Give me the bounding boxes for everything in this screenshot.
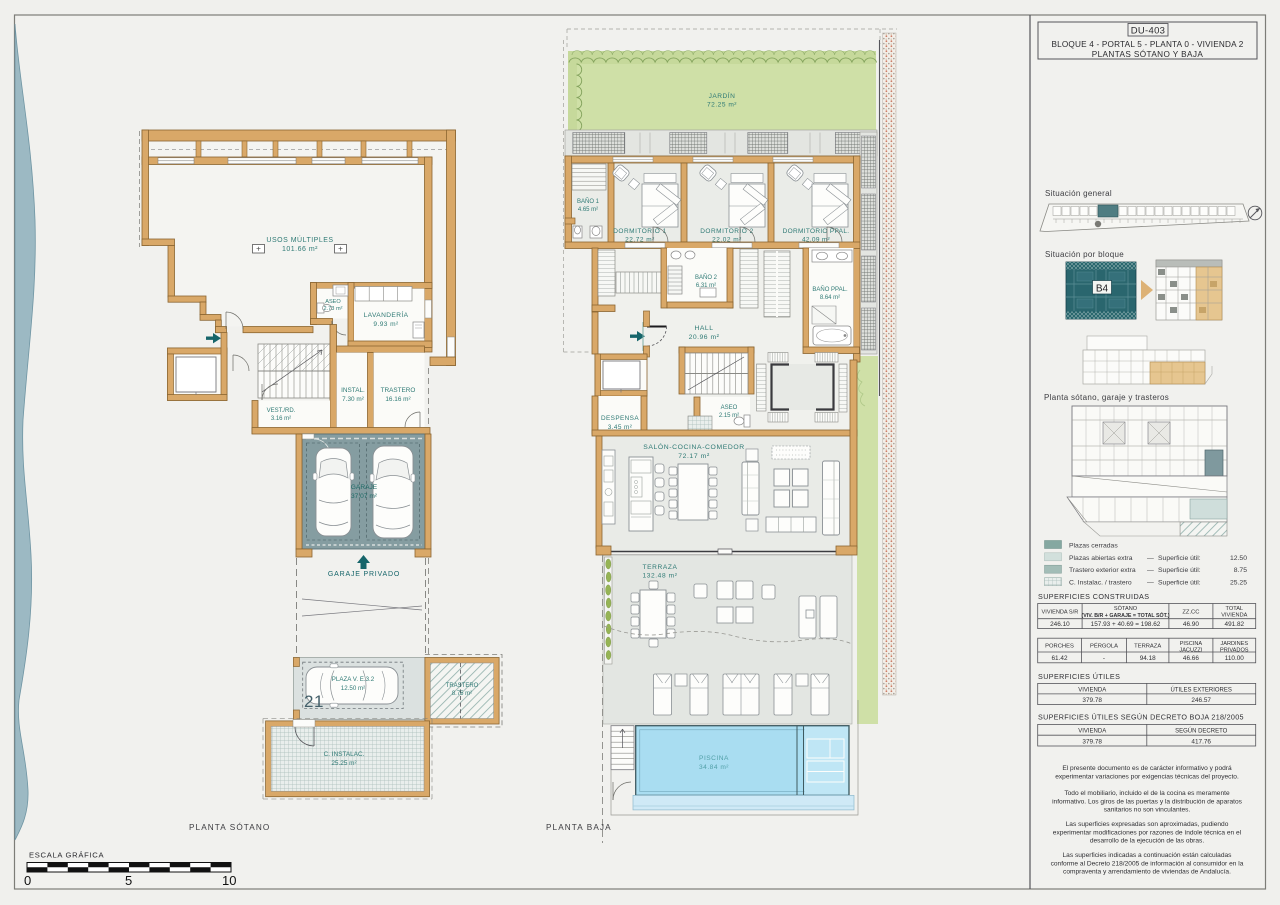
svg-text:5: 5 (125, 873, 132, 888)
svg-text:VIVIENDA: VIVIENDA (1078, 687, 1106, 693)
svg-text:42.09 m²: 42.09 m² (802, 237, 831, 244)
svg-text:Superficie útil:: Superficie útil: (1158, 567, 1201, 574)
svg-text:157.93 + 40.69 = 198.62: 157.93 + 40.69 = 198.62 (1091, 621, 1161, 628)
svg-text:ESCALA GRÁFICA: ESCALA GRÁFICA (29, 851, 104, 860)
svg-text:SUPERFICIES CONSTRUIDAS: SUPERFICIES CONSTRUIDAS (1038, 592, 1149, 601)
svg-text:10: 10 (222, 873, 236, 888)
svg-text:3.16 m²: 3.16 m² (271, 416, 291, 422)
svg-text:BAÑO 2: BAÑO 2 (695, 274, 718, 281)
svg-text:—: — (1147, 555, 1154, 562)
svg-text:Plazas abiertas extra: Plazas abiertas extra (1069, 555, 1133, 562)
svg-text:BAÑO 1: BAÑO 1 (577, 198, 600, 205)
svg-text:Superficie útil:: Superficie útil: (1158, 580, 1201, 587)
svg-text:6.31 m²: 6.31 m² (696, 283, 716, 289)
svg-text:379.78: 379.78 (1082, 697, 1102, 704)
svg-text:46.90: 46.90 (1183, 621, 1199, 628)
svg-text:2.15 m²: 2.15 m² (719, 413, 739, 419)
svg-text:Todo el mobiliario, incluido e: Todo el mobiliario, incluido el de la co… (1064, 790, 1230, 797)
svg-text:PRIVADOS: PRIVADOS (1220, 648, 1249, 654)
svg-text:ASEO: ASEO (325, 299, 341, 305)
svg-text:TRASTERO: TRASTERO (381, 387, 416, 394)
svg-text:Las superficies indicadas a co: Las superficies indicadas a continuación… (1063, 852, 1233, 859)
svg-text:DORMITORIO 2: DORMITORIO 2 (700, 228, 754, 235)
svg-text:BLOQUE 4 - PORTAL 5 - PLANTA 0: BLOQUE 4 - PORTAL 5 - PLANTA 0 - VIVIEND… (1051, 40, 1243, 49)
svg-text:8.75 m²: 8.75 m² (452, 691, 472, 697)
svg-text:conforme al Decreto 218/2005 d: conforme al Decreto 218/2005 de informac… (1051, 860, 1244, 867)
svg-text:ÚTILES EXTERIORES: ÚTILES EXTERIORES (1171, 686, 1232, 693)
svg-text:2.73 m²: 2.73 m² (324, 306, 343, 312)
svg-text:9.93 m²: 9.93 m² (373, 321, 399, 328)
svg-text:El presente documento es de ca: El presente documento es de carácter inf… (1062, 765, 1232, 772)
svg-text:DU-403: DU-403 (1131, 26, 1166, 37)
svg-text:JARDÍN: JARDÍN (709, 91, 736, 100)
svg-text:246.57: 246.57 (1191, 697, 1211, 704)
svg-text:Superficie útil:: Superficie útil: (1158, 555, 1201, 562)
svg-text:417.76: 417.76 (1191, 738, 1211, 745)
svg-text:experimentar variaciones por e: experimentar variaciones por exigencias … (1055, 773, 1239, 780)
svg-text:JARDINES: JARDINES (1220, 641, 1248, 647)
svg-text:experimentar modificaciones po: experimentar modificaciones por razones … (1053, 829, 1242, 836)
svg-text:SEGÚN DECRETO: SEGÚN DECRETO (1175, 728, 1228, 735)
svg-text:4.65 m²: 4.65 m² (578, 207, 598, 213)
svg-text:20.96 m²: 20.96 m² (689, 334, 720, 341)
svg-text:B4: B4 (1096, 284, 1109, 295)
svg-text:46.66: 46.66 (1183, 655, 1199, 662)
svg-text:8.64 m²: 8.64 m² (820, 295, 840, 301)
svg-text:DESPENSA: DESPENSA (601, 415, 639, 422)
svg-text:—: — (1147, 580, 1154, 587)
svg-text:Situación general: Situación general (1045, 189, 1112, 198)
svg-text:DORMITORIO 1: DORMITORIO 1 (613, 228, 667, 235)
svg-text:22.02 m²: 22.02 m² (712, 237, 742, 244)
svg-text:(VIV. B/R + GARAJE = TOTAL SÓT: (VIV. B/R + GARAJE = TOTAL SÓT.) (1081, 611, 1169, 619)
svg-text:7.30 m²: 7.30 m² (342, 396, 364, 403)
svg-text:PORCHES: PORCHES (1045, 644, 1074, 650)
svg-text:Las superficies expresadas son: Las superficies expresadas son aproximad… (1066, 821, 1229, 828)
svg-text:16.16 m²: 16.16 m² (385, 396, 410, 403)
svg-text:246.10: 246.10 (1050, 621, 1070, 628)
svg-text:Trastero exterior extra: Trastero exterior extra (1069, 567, 1136, 574)
svg-text:25.25: 25.25 (1230, 580, 1247, 587)
svg-text:VIVIENDA S/R: VIVIENDA S/R (1042, 610, 1079, 616)
svg-text:GARAJE PRIVADO: GARAJE PRIVADO (328, 571, 400, 578)
svg-text:Planta sótano, garaje y traste: Planta sótano, garaje y trasteros (1044, 393, 1169, 402)
svg-text:informativo. Los giros de las: informativo. Los giros de las puertas y … (1052, 798, 1243, 805)
svg-text:HALL: HALL (694, 325, 713, 332)
svg-text:ZZ.CC: ZZ.CC (1182, 610, 1199, 616)
svg-text:379.78: 379.78 (1082, 738, 1102, 745)
svg-text:ASEO: ASEO (721, 405, 738, 411)
svg-text:desarrollo de la ejecución de: desarrollo de la ejecución de las obras. (1090, 838, 1205, 845)
svg-text:110.00: 110.00 (1225, 655, 1245, 662)
svg-text:Plazas cerradas: Plazas cerradas (1069, 543, 1118, 550)
svg-text:37.07 m²: 37.07 m² (351, 493, 378, 500)
svg-text:-: - (1103, 655, 1105, 662)
svg-text:USOS MÚLTIPLES: USOS MÚLTIPLES (266, 235, 333, 244)
svg-text:PLANTA BAJA: PLANTA BAJA (546, 823, 612, 832)
svg-text:TRASTERO: TRASTERO (446, 683, 479, 689)
svg-text:132.48 m²: 132.48 m² (642, 573, 677, 580)
svg-text:—: — (1147, 567, 1154, 574)
svg-text:SÓTANO: SÓTANO (1114, 605, 1138, 612)
svg-text:PLANTA SÓTANO: PLANTA SÓTANO (189, 822, 270, 832)
svg-text:8.75: 8.75 (1234, 567, 1247, 574)
svg-text:BAÑO PPAL.: BAÑO PPAL. (812, 286, 848, 293)
svg-text:SALÓN-COCINA-COMEDOR: SALÓN-COCINA-COMEDOR (643, 442, 745, 451)
svg-text:34.84 m²: 34.84 m² (699, 764, 729, 771)
svg-text:sanitarios no son vinculantes.: sanitarios no son vinculantes. (1104, 807, 1191, 814)
svg-text:C. Instalac. / trastero: C. Instalac. / trastero (1069, 580, 1132, 587)
svg-text:TERRAZA: TERRAZA (643, 564, 678, 571)
svg-text:JACUZZI: JACUZZI (1179, 648, 1202, 654)
svg-text:12.50: 12.50 (1230, 555, 1247, 562)
svg-text:101.66 m²: 101.66 m² (282, 246, 318, 253)
svg-text:22.72 m²: 22.72 m² (625, 237, 655, 244)
svg-text:compraventa y arrendamiento d: compraventa y arrendamiento de viviendas… (1063, 869, 1231, 876)
svg-text:72.25 m²: 72.25 m² (707, 102, 737, 109)
svg-text:21: 21 (304, 692, 324, 711)
svg-text:PÉRGOLA: PÉRGOLA (1090, 643, 1118, 650)
svg-text:SUPERFICIES ÚTILES: SUPERFICIES ÚTILES (1038, 672, 1120, 681)
svg-text:SUPERFICIES ÚTILES SEGÚN DECRE: SUPERFICIES ÚTILES SEGÚN DECRETO BOJA 21… (1038, 713, 1244, 722)
svg-text:C. INSTALAC.: C. INSTALAC. (324, 751, 365, 758)
svg-text:PISCINA: PISCINA (1180, 641, 1203, 647)
svg-text:94.18: 94.18 (1140, 655, 1156, 662)
svg-text:61.42: 61.42 (1052, 655, 1068, 662)
svg-text:VIVIENDA: VIVIENDA (1078, 729, 1106, 735)
svg-text:72.17 m²: 72.17 m² (678, 453, 710, 460)
svg-text:PLAZA V. E.3.2: PLAZA V. E.3.2 (332, 676, 375, 683)
svg-text:VEST./RD.: VEST./RD. (267, 408, 296, 414)
svg-text:INSTAL.: INSTAL. (341, 387, 365, 394)
svg-text:491.82: 491.82 (1225, 621, 1245, 628)
svg-text:VIVIENDA: VIVIENDA (1221, 613, 1247, 619)
svg-text:Situación por bloque: Situación por bloque (1045, 250, 1124, 259)
svg-text:0: 0 (24, 873, 31, 888)
svg-text:TERRAZA: TERRAZA (1134, 644, 1161, 650)
svg-text:PLANTAS SÓTANO Y BAJA: PLANTAS SÓTANO Y BAJA (1092, 49, 1204, 59)
svg-text:TOTAL: TOTAL (1226, 606, 1244, 612)
svg-text:PISCINA: PISCINA (699, 755, 729, 762)
svg-text:12.50 m²: 12.50 m² (341, 685, 365, 692)
svg-text:GARAJE: GARAJE (351, 484, 378, 491)
svg-text:25.25 m²: 25.25 m² (331, 760, 356, 767)
svg-text:LAVANDERÍA: LAVANDERÍA (364, 310, 409, 319)
